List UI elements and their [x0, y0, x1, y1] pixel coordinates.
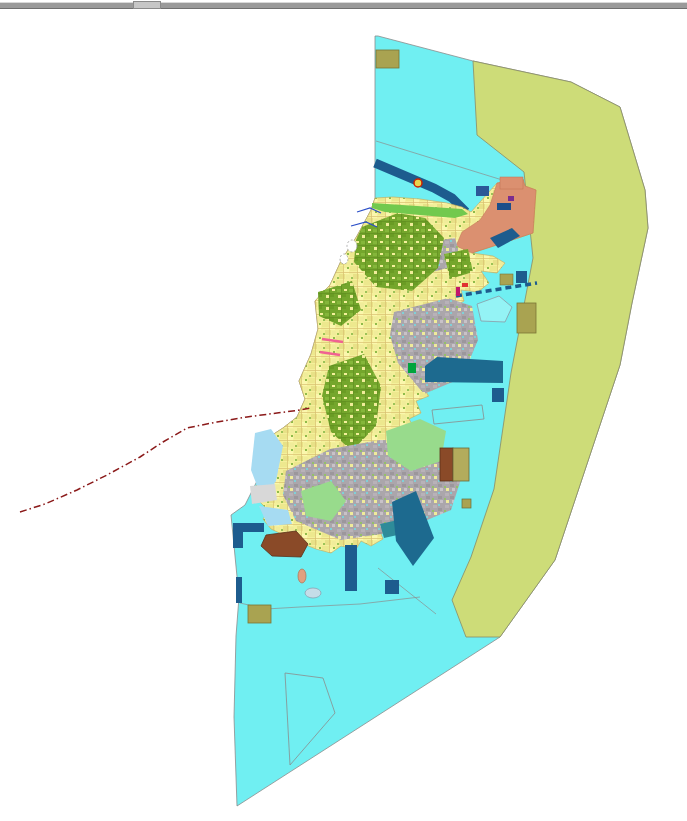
khaki-block-northeast-small: [500, 274, 513, 285]
islet-salmon-south: [298, 569, 306, 583]
green-mark-east: [408, 363, 416, 373]
harbor-square-east: [492, 388, 504, 402]
purple-mark-north: [508, 196, 514, 201]
navy-square-northeast1: [476, 186, 489, 196]
islet-outline-northwest2: [340, 254, 348, 264]
brown-block-southeast: [440, 448, 453, 481]
map-canvas[interactable]: [0, 0, 687, 821]
red-mark-east: [462, 283, 468, 287]
islet-gray-south: [305, 588, 321, 598]
salmon-zone-rect: [500, 177, 523, 189]
khaki-block-southeast: [453, 448, 469, 481]
navy-square-northeast2: [516, 271, 527, 283]
khaki-block-southwest: [248, 605, 271, 623]
pier-bar-west: [236, 577, 242, 603]
khaki-islet-east: [462, 499, 471, 508]
islet-outline-northwest1: [347, 240, 357, 252]
khaki-block-east-large: [517, 303, 536, 333]
pier-L-vertical: [233, 523, 243, 548]
map-feature-layer: [20, 36, 648, 806]
khaki-block-top: [376, 50, 399, 68]
pier-vertical-south: [345, 545, 357, 591]
pier-square-south: [385, 580, 399, 594]
navy-strip-north-tip: [497, 203, 511, 210]
magenta-mark-east: [456, 287, 460, 296]
map-viewport: [0, 0, 687, 821]
harbor-rect-east: [425, 357, 503, 383]
buoy-marker-north: [414, 179, 422, 187]
